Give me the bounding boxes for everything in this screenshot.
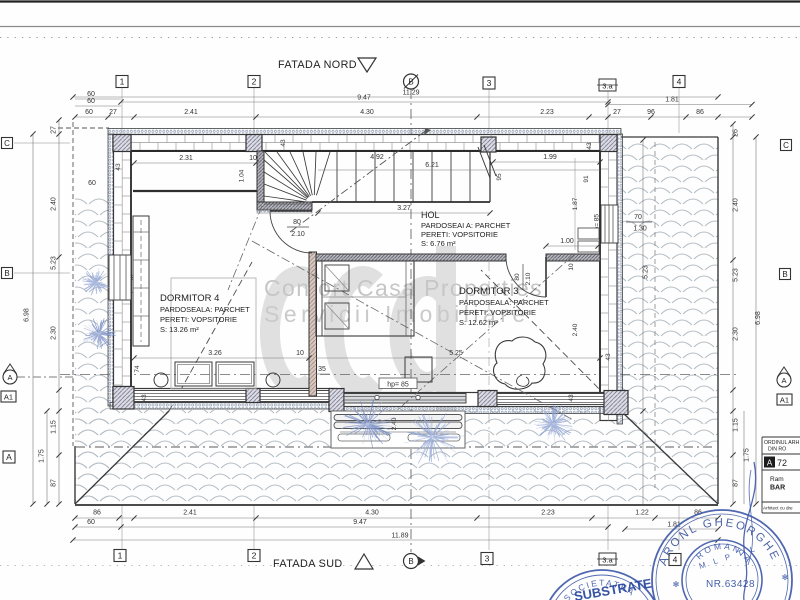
svg-text:Arhitect cu dre: Arhitect cu dre <box>763 506 793 511</box>
svg-text:C: C <box>4 139 10 148</box>
svg-text:5.25: 5.25 <box>449 350 463 357</box>
svg-text:27: 27 <box>51 126 58 134</box>
svg-text:C: C <box>783 141 789 150</box>
svg-text:96: 96 <box>647 109 655 116</box>
svg-text:91: 91 <box>583 175 590 183</box>
svg-text:43: 43 <box>141 394 148 402</box>
svg-text:27: 27 <box>109 109 117 116</box>
svg-text:70: 70 <box>634 214 642 221</box>
svg-text:A: A <box>767 459 773 468</box>
svg-text:1.81: 1.81 <box>665 97 679 104</box>
svg-text:43: 43 <box>280 139 287 147</box>
svg-text:B: B <box>408 78 413 87</box>
svg-text:B: B <box>782 270 787 279</box>
svg-text:PERETI: VOPSITORIE: PERETI: VOPSITORIE <box>160 315 237 324</box>
svg-text:FATADA SUD: FATADA SUD <box>273 558 343 570</box>
svg-text:1.75: 1.75 <box>39 449 46 463</box>
svg-text:4: 4 <box>677 77 682 87</box>
svg-text:10: 10 <box>568 263 575 271</box>
svg-text:4.92: 4.92 <box>370 154 384 161</box>
svg-text:2.41: 2.41 <box>183 510 197 517</box>
svg-text:4.30: 4.30 <box>365 510 379 517</box>
svg-text:2.40: 2.40 <box>391 417 398 430</box>
svg-text:2.31: 2.31 <box>179 155 193 162</box>
svg-text:PARDOSEAI A: PARCHET: PARDOSEAI A: PARCHET <box>421 221 511 230</box>
svg-text:60: 60 <box>88 180 96 187</box>
svg-text:2.41: 2.41 <box>184 109 198 116</box>
svg-text:2.30: 2.30 <box>51 326 58 340</box>
svg-text:S: 6.76 m²: S: 6.76 m² <box>421 239 456 248</box>
svg-text:5.23: 5.23 <box>733 268 740 282</box>
svg-text:5.23: 5.23 <box>51 256 58 270</box>
svg-text:4.30: 4.30 <box>360 109 374 116</box>
svg-text:2.23: 2.23 <box>540 109 554 116</box>
svg-text:hp= 85: hp= 85 <box>387 382 409 389</box>
svg-text:1.30: 1.30 <box>633 226 647 233</box>
svg-text:1.22: 1.22 <box>635 510 649 517</box>
svg-text:43: 43 <box>586 142 593 150</box>
svg-text:S: 13.26 m²: S: 13.26 m² <box>160 325 199 334</box>
svg-text:2.10: 2.10 <box>525 272 532 285</box>
svg-text:B: B <box>408 557 413 566</box>
svg-text:ORDINUL ARH: ORDINUL ARH <box>764 440 800 446</box>
svg-text:1.00: 1.00 <box>560 238 574 245</box>
svg-text:A: A <box>6 452 12 462</box>
svg-text:3.a: 3.a <box>602 556 613 565</box>
svg-text:43: 43 <box>605 353 612 361</box>
svg-text:60: 60 <box>87 98 95 105</box>
svg-text:2.30: 2.30 <box>733 327 740 341</box>
svg-text:PERETI: VOPSITORIE: PERETI: VOPSITORIE <box>421 230 498 239</box>
svg-text:A1: A1 <box>780 396 789 405</box>
svg-text:1.04: 1.04 <box>239 169 246 182</box>
svg-text:1.87: 1.87 <box>572 197 579 210</box>
svg-text:HOL: HOL <box>421 210 440 220</box>
svg-text:35: 35 <box>318 366 326 373</box>
svg-text:5.23: 5.23 <box>643 265 650 279</box>
svg-text:60: 60 <box>85 109 93 116</box>
svg-text:S: 12.62 m²: S: 12.62 m² <box>459 318 498 327</box>
svg-text:Ram: Ram <box>770 476 784 483</box>
svg-text:3: 3 <box>487 78 492 88</box>
svg-text:6.98: 6.98 <box>755 311 762 325</box>
svg-text:11.29: 11.29 <box>403 90 420 97</box>
svg-text:95: 95 <box>496 173 503 181</box>
svg-text:PARDOSEALA: PARCHET: PARDOSEALA: PARCHET <box>160 305 250 314</box>
svg-text:80: 80 <box>514 273 521 281</box>
svg-text:DORMITOR 4: DORMITOR 4 <box>160 293 219 304</box>
svg-text:2.10: 2.10 <box>291 231 305 238</box>
svg-text:PARDOSEALA: PARCHET: PARDOSEALA: PARCHET <box>459 298 549 307</box>
svg-text:3.a: 3.a <box>602 82 613 91</box>
svg-text:87: 87 <box>733 479 740 487</box>
svg-text:BAR: BAR <box>770 485 785 492</box>
svg-text:87: 87 <box>51 479 58 487</box>
svg-text:1: 1 <box>118 551 123 561</box>
svg-text:2.40: 2.40 <box>51 197 58 211</box>
svg-text:74: 74 <box>134 365 141 373</box>
svg-text:43: 43 <box>568 394 575 402</box>
svg-text:2.40: 2.40 <box>733 198 740 212</box>
svg-text:DORMITOR 3: DORMITOR 3 <box>459 286 518 297</box>
svg-text:2: 2 <box>252 551 257 561</box>
svg-text:9.47: 9.47 <box>353 519 367 526</box>
svg-text:72: 72 <box>777 458 787 468</box>
svg-text:NR.63428: NR.63428 <box>706 579 755 590</box>
svg-text:3.27: 3.27 <box>397 205 411 212</box>
svg-text:43: 43 <box>115 163 122 171</box>
svg-text:DIN RO: DIN RO <box>768 447 786 453</box>
svg-text:A: A <box>781 376 786 385</box>
svg-text:2: 2 <box>252 77 257 87</box>
svg-text:10: 10 <box>296 350 304 357</box>
svg-text:1: 1 <box>120 77 125 87</box>
svg-text:10: 10 <box>249 155 257 162</box>
svg-text:A1: A1 <box>4 393 13 402</box>
svg-text:3: 3 <box>485 554 490 564</box>
svg-text:✻: ✻ <box>673 580 680 589</box>
svg-text:1.75: 1.75 <box>744 448 751 462</box>
svg-text:9.47: 9.47 <box>357 95 371 102</box>
svg-text:2.40: 2.40 <box>572 323 579 336</box>
svg-text:86: 86 <box>696 109 704 116</box>
svg-text:86: 86 <box>93 510 101 517</box>
svg-text:6.21: 6.21 <box>425 162 439 169</box>
svg-text:80: 80 <box>293 219 301 226</box>
svg-text:✻: ✻ <box>782 573 789 582</box>
svg-text:2.23: 2.23 <box>541 510 555 517</box>
svg-text:1.15: 1.15 <box>733 418 740 432</box>
svg-text:11.89: 11.89 <box>392 533 409 540</box>
svg-text:6.98: 6.98 <box>24 308 31 322</box>
svg-text:27: 27 <box>613 109 621 116</box>
svg-text:1.15: 1.15 <box>51 420 58 434</box>
svg-text:26: 26 <box>733 129 740 137</box>
svg-text:A: A <box>7 373 12 382</box>
svg-text:3.26: 3.26 <box>208 350 222 357</box>
svg-text:FATADA NORD: FATADA NORD <box>278 59 357 71</box>
svg-text:60: 60 <box>87 91 95 98</box>
svg-text:60: 60 <box>87 519 95 526</box>
svg-text:1.99: 1.99 <box>543 154 557 161</box>
svg-text:B: B <box>4 269 9 278</box>
svg-text:PERETI: VOPSITORIE: PERETI: VOPSITORIE <box>459 308 536 317</box>
